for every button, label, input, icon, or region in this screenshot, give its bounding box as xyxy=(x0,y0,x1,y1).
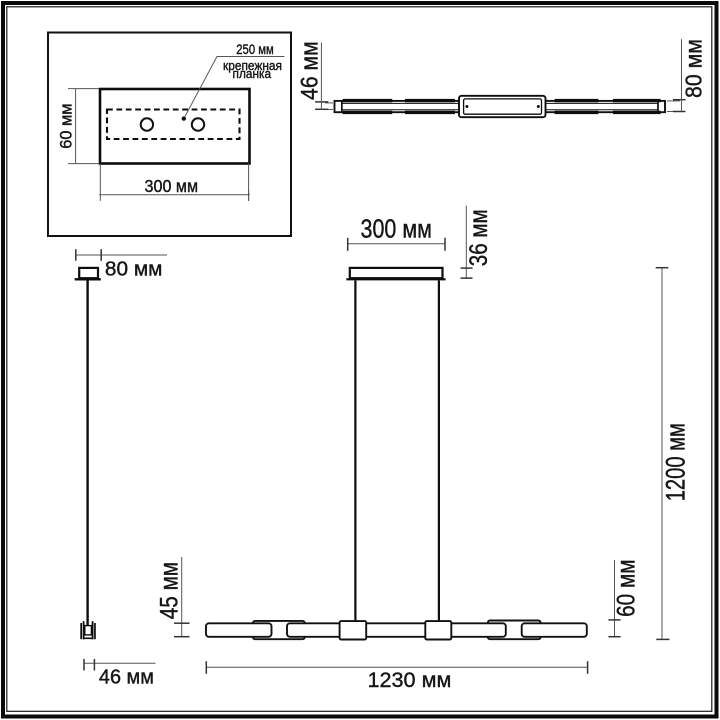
svg-text:60 мм: 60 мм xyxy=(58,104,76,149)
svg-text:250 мм: 250 мм xyxy=(236,42,273,57)
svg-text:1200 мм: 1200 мм xyxy=(661,423,691,501)
svg-text:46 мм: 46 мм xyxy=(297,41,324,100)
svg-text:300 мм: 300 мм xyxy=(145,176,199,196)
svg-text:36 мм: 36 мм xyxy=(466,209,493,266)
svg-text:46 мм: 46 мм xyxy=(99,666,154,688)
svg-text:80 мм: 80 мм xyxy=(105,257,163,280)
svg-text:планка: планка xyxy=(233,66,272,81)
svg-text:80 мм: 80 мм xyxy=(680,39,706,98)
svg-text:1230 мм: 1230 мм xyxy=(368,667,452,692)
svg-text:60 мм: 60 мм xyxy=(613,560,641,617)
svg-text:45 мм: 45 мм xyxy=(156,562,184,619)
svg-text:300 мм: 300 мм xyxy=(361,216,432,244)
